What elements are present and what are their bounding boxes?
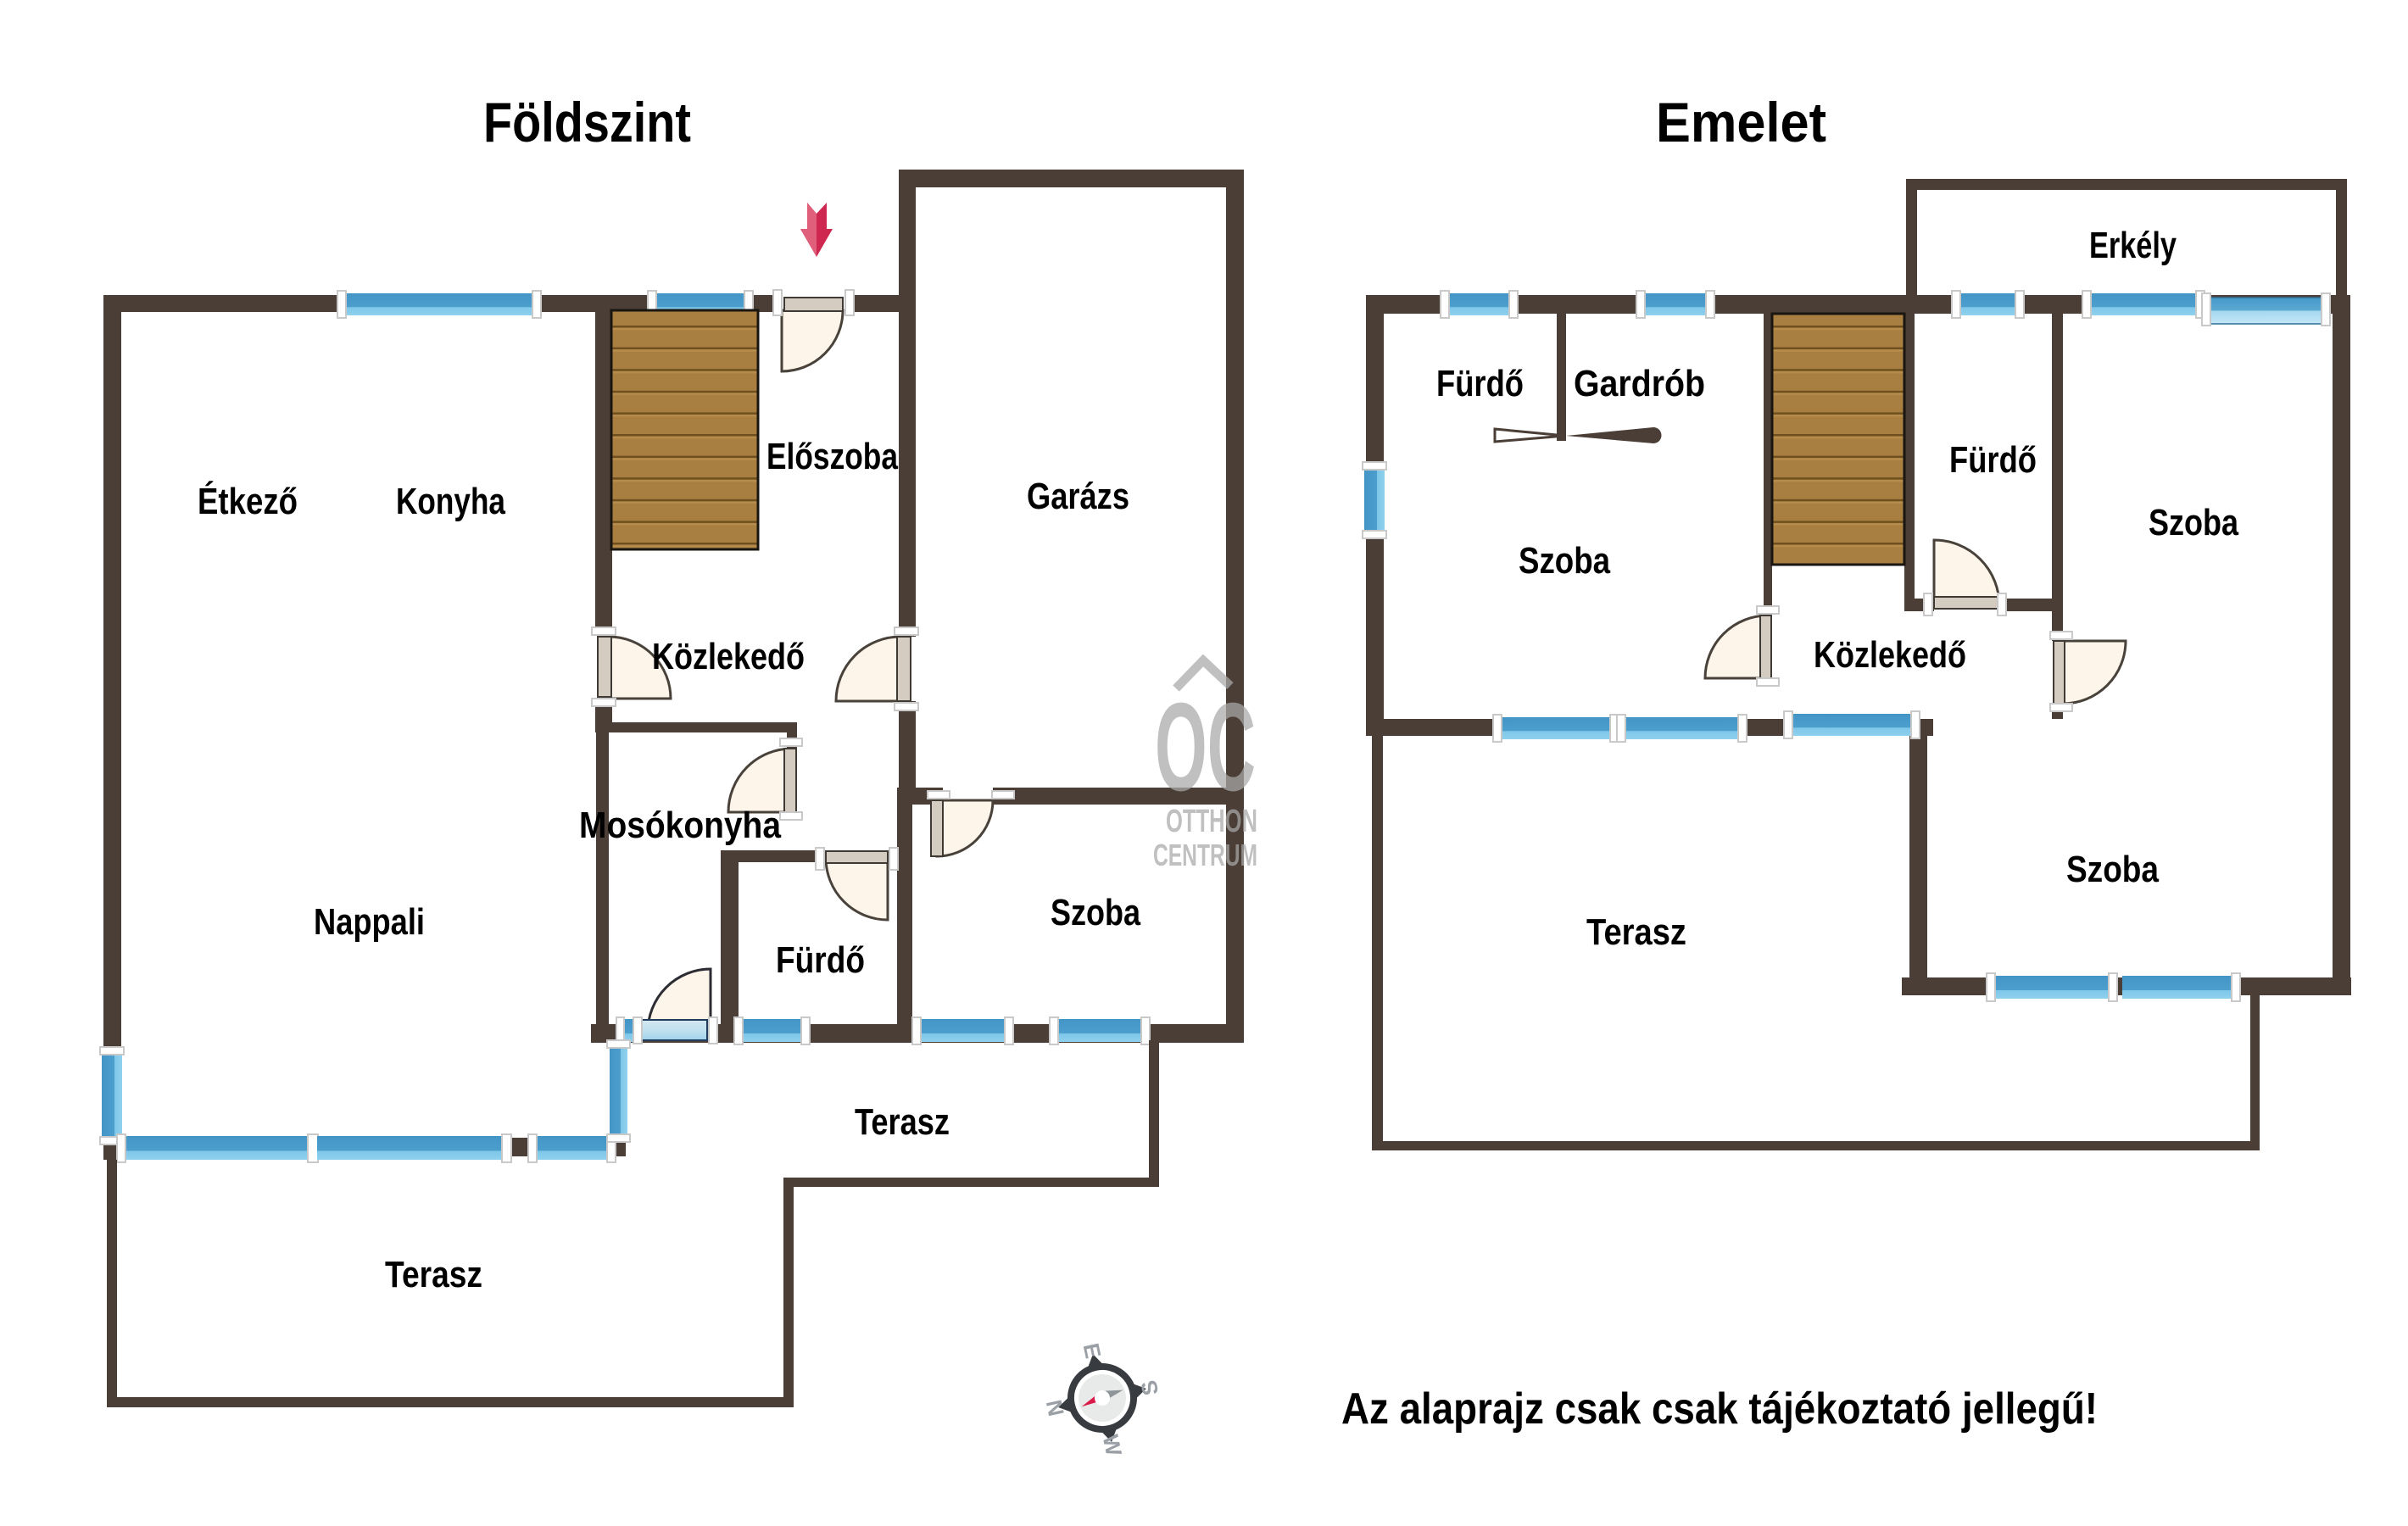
svg-text:Közlekedő: Közlekedő <box>1814 634 1966 676</box>
svg-text:Szoba: Szoba <box>2149 502 2238 543</box>
svg-text:Nappali: Nappali <box>314 901 425 943</box>
svg-text:Földszint: Földszint <box>483 91 691 153</box>
svg-text:Az alaprajz csak csak tájékozt: Az alaprajz csak csak tájékoztató jelleg… <box>1341 1384 2098 1434</box>
svg-text:Előszoba: Előszoba <box>766 436 898 477</box>
svg-text:Fürdő: Fürdő <box>1436 363 1524 404</box>
svg-text:OC: OC <box>1155 677 1256 817</box>
svg-text:Szoba: Szoba <box>2066 849 2159 890</box>
svg-text:Terasz: Terasz <box>855 1101 950 1143</box>
svg-text:Konyha: Konyha <box>396 481 505 522</box>
svg-text:Erkély: Erkély <box>2089 225 2177 266</box>
svg-text:OTTHON: OTTHON <box>1166 804 1257 839</box>
svg-text:Terasz: Terasz <box>385 1254 482 1295</box>
svg-text:Mosókonyha: Mosókonyha <box>579 805 781 846</box>
svg-text:Fürdő: Fürdő <box>1949 439 2037 481</box>
svg-text:Gardrób: Gardrób <box>1574 363 1705 404</box>
svg-text:Emelet: Emelet <box>1656 91 1826 153</box>
svg-text:Étkező: Étkező <box>198 480 298 522</box>
svg-text:Szoba: Szoba <box>1519 540 1610 582</box>
svg-text:Garázs: Garázs <box>1027 476 1129 517</box>
svg-text:CENTRUM: CENTRUM <box>1153 838 1257 872</box>
svg-text:Fürdő: Fürdő <box>776 939 865 981</box>
svg-text:Szoba: Szoba <box>1051 892 1140 933</box>
svg-text:Terasz: Terasz <box>1586 911 1686 953</box>
svg-text:Közlekedő: Közlekedő <box>652 636 805 677</box>
